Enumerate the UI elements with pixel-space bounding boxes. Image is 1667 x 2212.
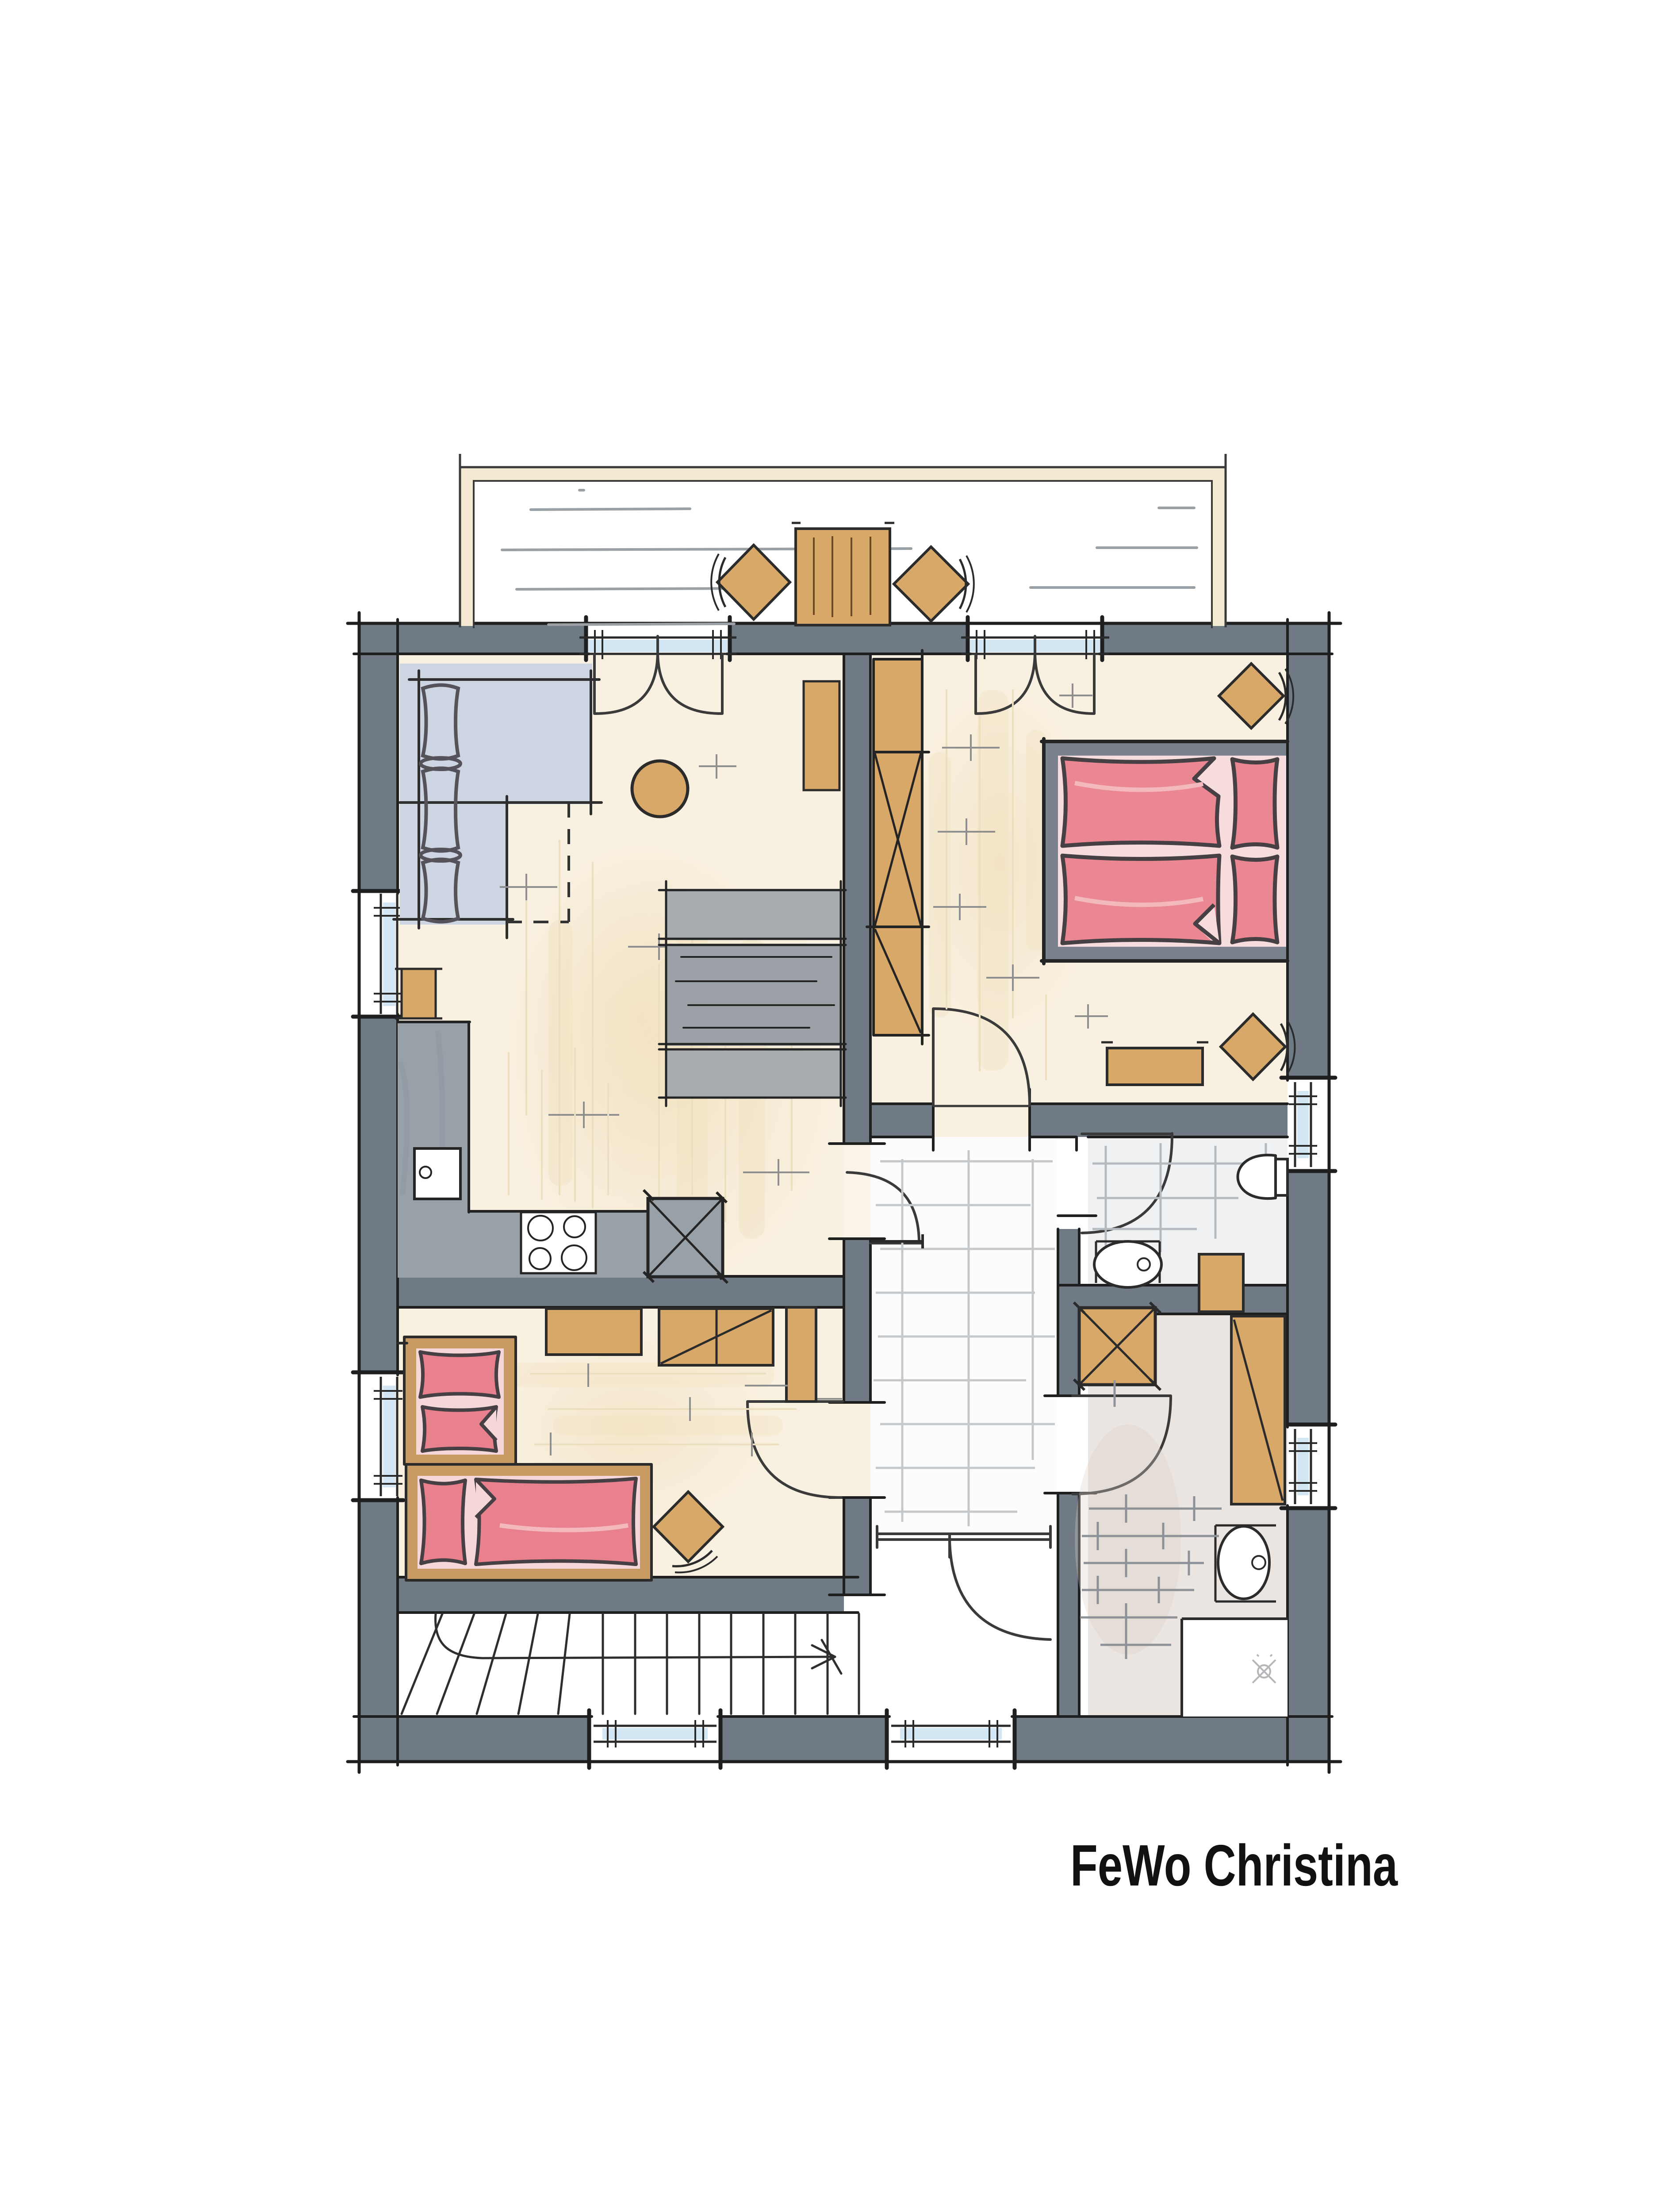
svg-text:FeWo Christina: FeWo Christina [1070, 1833, 1398, 1898]
